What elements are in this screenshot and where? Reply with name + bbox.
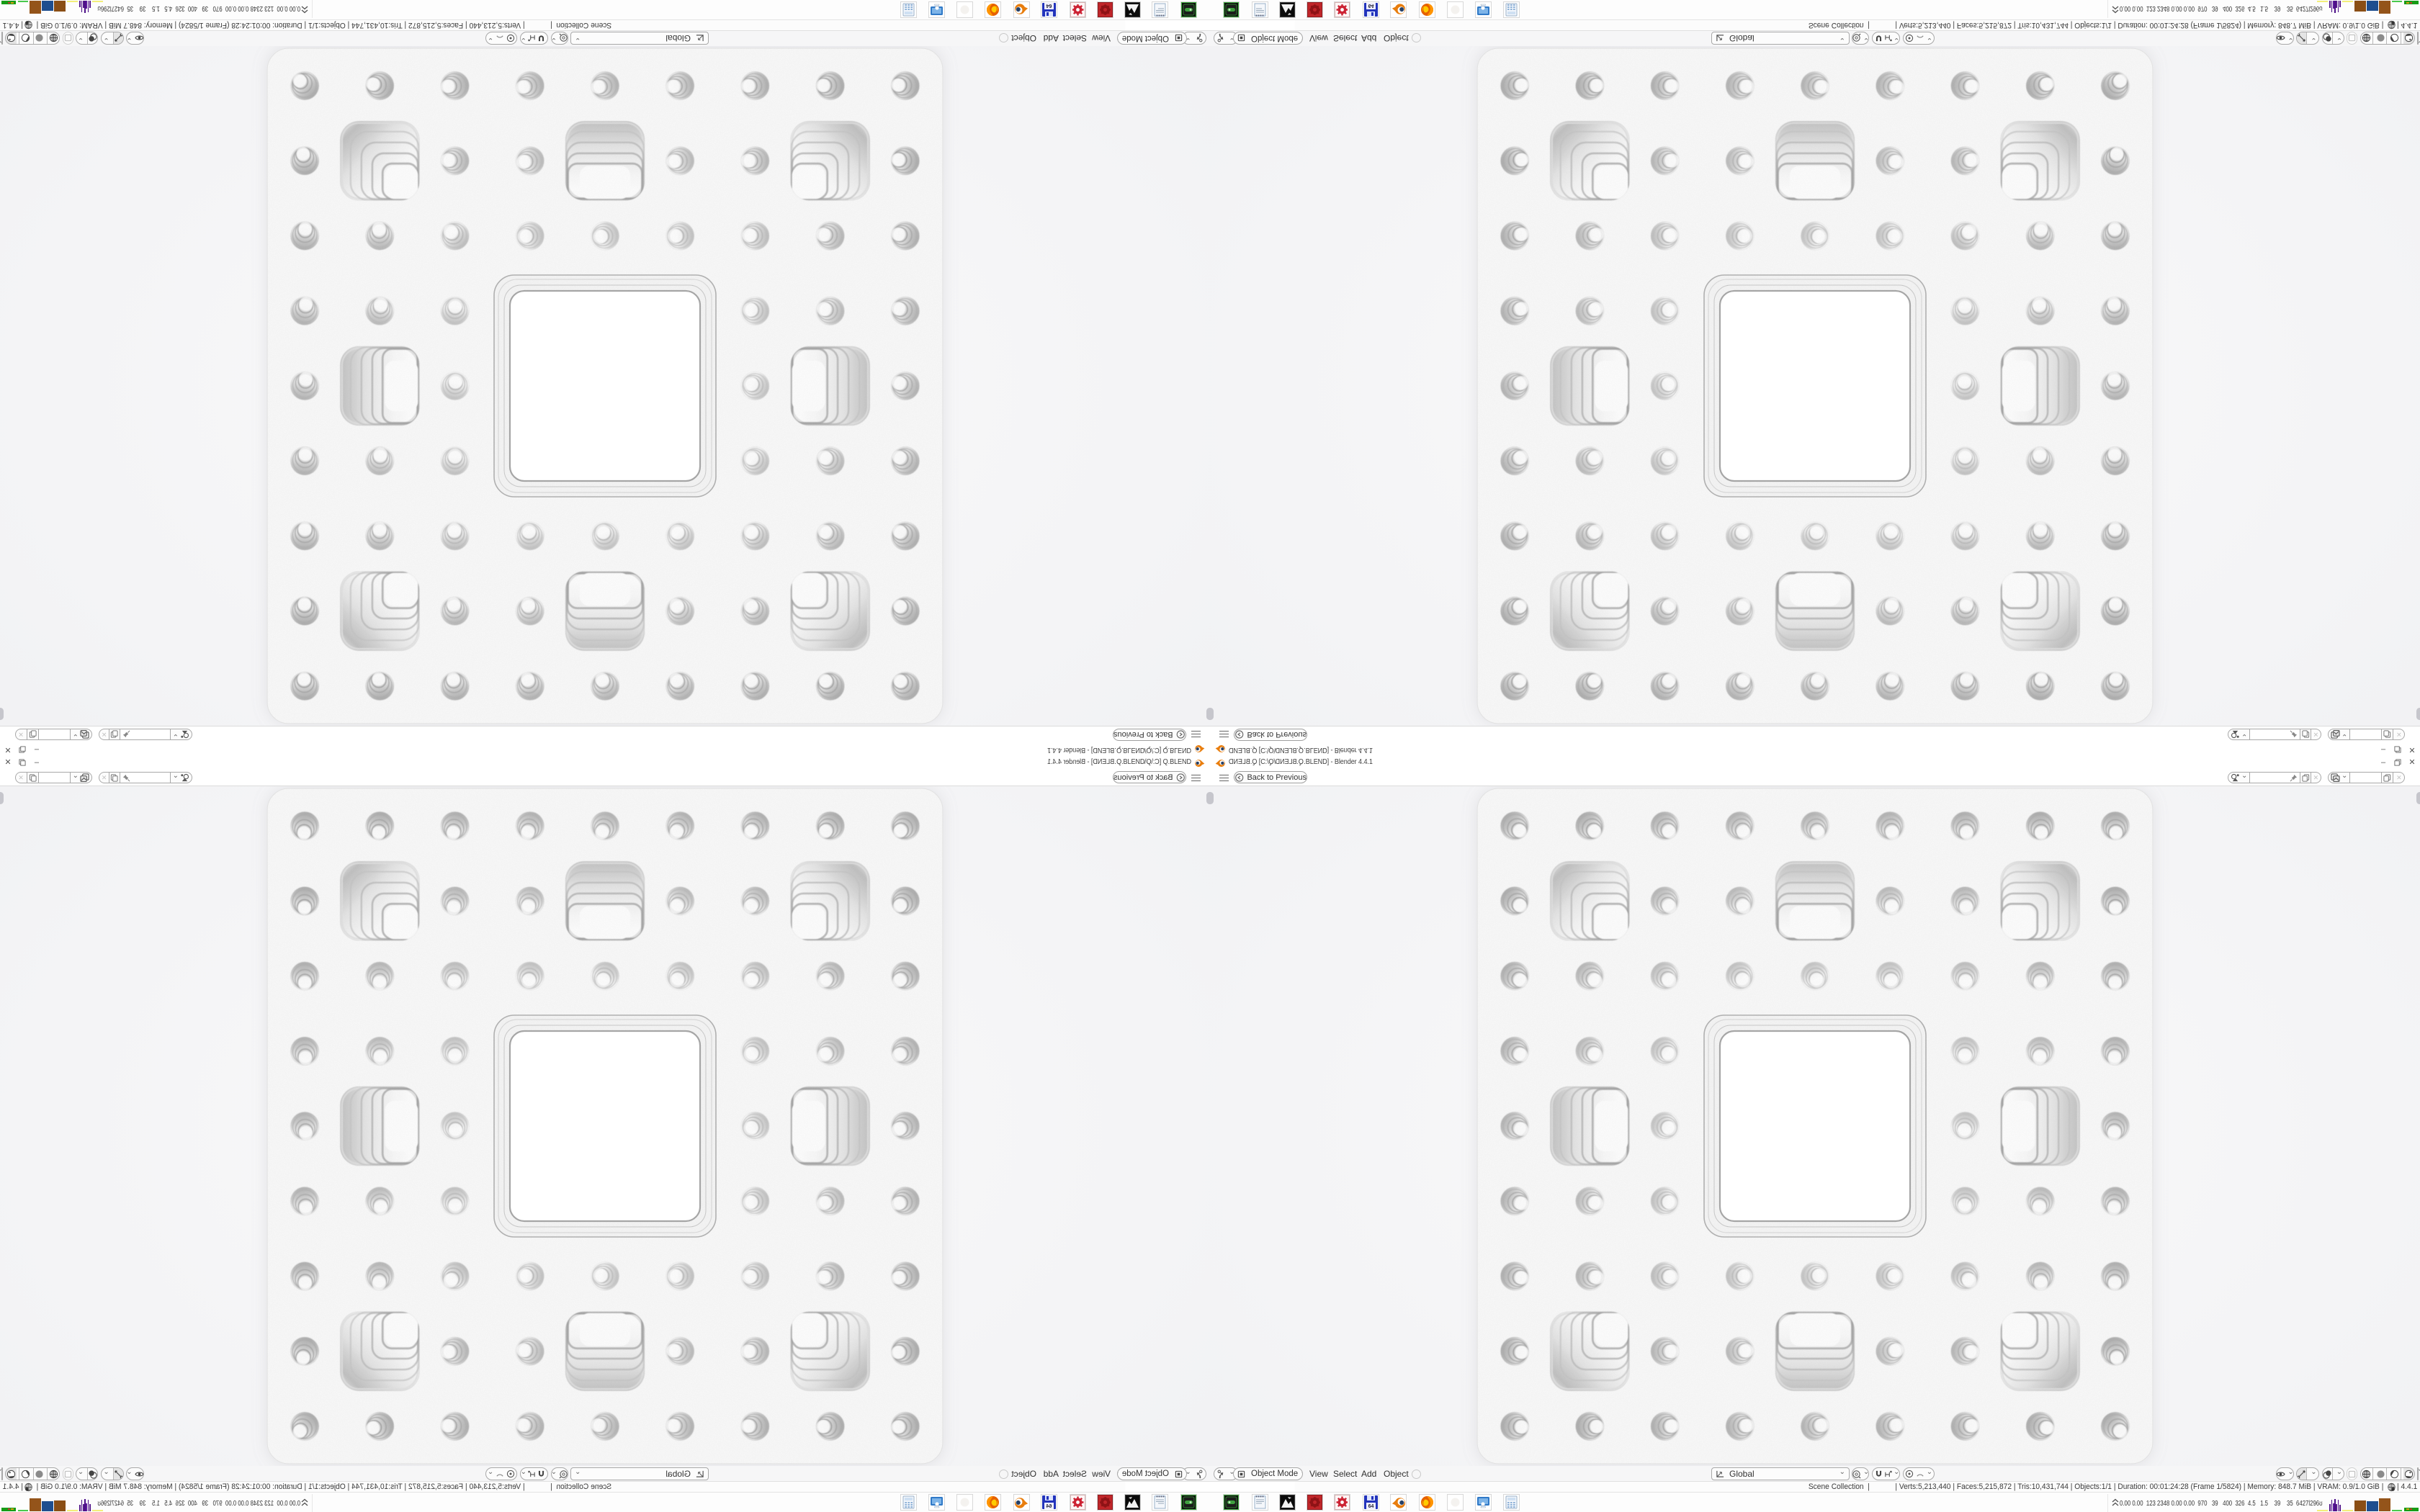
svg-text:64: 64 (1047, 3, 1052, 8)
svg-text:64: 64 (1047, 1504, 1052, 1509)
svg-text:64: 64 (1368, 1504, 1374, 1509)
svg-text:64: 64 (1368, 3, 1374, 8)
